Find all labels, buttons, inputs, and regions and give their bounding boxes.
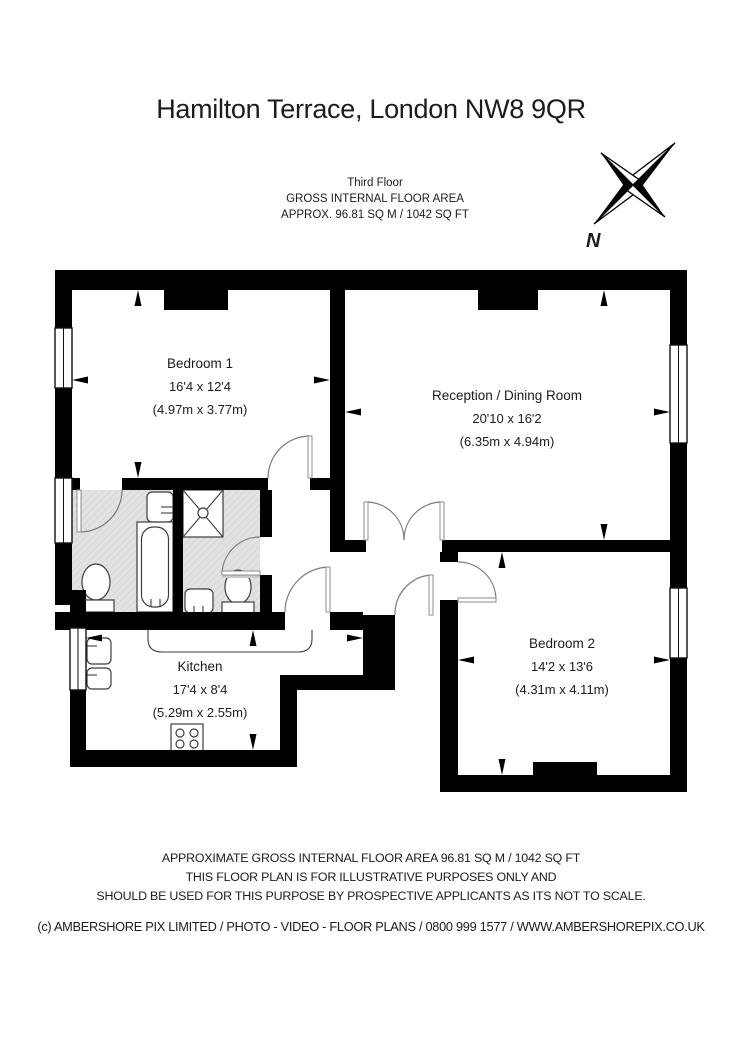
room-bedroom-1: Bedroom 1 16'4 x 12'4 (4.97m x 3.77m)	[153, 356, 248, 417]
floor-plan-canvas: Hamilton Terrace, London NW8 9QR Third F…	[0, 0, 742, 1050]
entrance-door	[395, 575, 433, 615]
chimney-breast	[533, 762, 597, 775]
copyright-line: (c) AMBERSHORE PIX LIMITED / PHOTO - VID…	[37, 919, 705, 934]
room-dimensions-imperial: 16'4 x 12'4	[169, 379, 231, 394]
double-doors	[364, 502, 444, 540]
floor-plan-page: Hamilton Terrace, London NW8 9QR Third F…	[0, 0, 742, 1050]
room-name: Bedroom 1	[167, 356, 233, 371]
disclaimer-line-2: THIS FLOOR PLAN IS FOR ILLUSTRATIVE PURP…	[186, 870, 557, 884]
room-dimensions-imperial: 17'4 x 8'4	[173, 682, 228, 697]
room-reception-dining: Reception / Dining Room 20'10 x 16'2 (6.…	[432, 388, 582, 449]
room-dimensions-metric: (4.31m x 4.11m)	[515, 682, 609, 697]
chimney-breast	[478, 290, 538, 310]
room-name: Reception / Dining Room	[432, 388, 582, 403]
chimney-breast	[164, 290, 228, 310]
room-name: Kitchen	[177, 659, 222, 674]
disclaimer-line-1: APPROXIMATE GROSS INTERNAL FLOOR AREA 96…	[162, 851, 581, 865]
door	[458, 562, 496, 602]
window	[55, 478, 72, 543]
shower	[183, 490, 223, 537]
floor-label: Third Floor	[347, 177, 403, 189]
window	[70, 628, 86, 690]
kitchen-counter	[148, 630, 312, 652]
approx-area-label: APPROX. 96.81 SQ M / 1042 SQ FT	[281, 209, 469, 221]
room-dimensions-metric: (6.35m x 4.94m)	[460, 434, 555, 449]
fridge	[87, 638, 111, 689]
room-dimensions-imperial: 14'2 x 13'6	[531, 659, 593, 674]
sink	[185, 589, 213, 613]
disclaimer-line-3: SHOULD BE USED FOR THIS PURPOSE BY PROSP…	[96, 889, 645, 903]
north-label: N	[586, 230, 601, 252]
room-dimensions-imperial: 20'10 x 16'2	[472, 411, 541, 426]
hob	[171, 724, 203, 752]
room-dimensions-metric: (5.29m x 2.55m)	[153, 705, 248, 720]
window	[55, 328, 72, 388]
compass-rose-icon: N	[586, 143, 675, 252]
room-bedroom-2: Bedroom 2 14'2 x 13'6 (4.31m x 4.11m)	[515, 636, 609, 697]
gross-area-label: GROSS INTERNAL FLOOR AREA	[286, 193, 464, 205]
room-kitchen: Kitchen 17'4 x 8'4 (5.29m x 2.55m)	[153, 659, 248, 720]
door	[268, 436, 312, 478]
window	[670, 588, 687, 658]
room-name: Bedroom 2	[529, 636, 595, 651]
bathtub	[137, 522, 173, 612]
room-dimensions-metric: (4.97m x 3.77m)	[153, 402, 248, 417]
window	[670, 345, 687, 443]
door	[285, 567, 330, 612]
page-title: Hamilton Terrace, London NW8 9QR	[156, 94, 586, 124]
